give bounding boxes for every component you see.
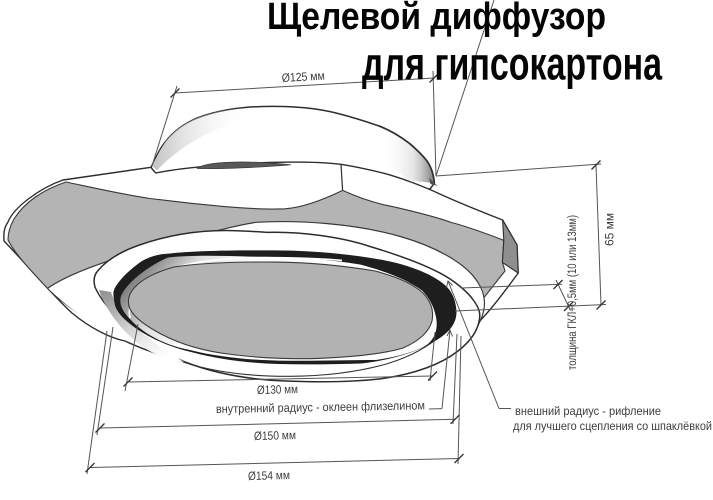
svg-text:внутренний радиус - оклеен фли: внутренний радиус - оклеен флизелином — [216, 398, 425, 416]
svg-text:толщина ГКЛ+0,5мм (10 или 13мм: толщина ГКЛ+0,5мм (10 или 13мм) — [567, 215, 579, 370]
svg-text:Ø154 мм: Ø154 мм — [248, 468, 290, 483]
svg-text:Ø130 мм: Ø130 мм — [257, 382, 298, 397]
svg-text:для гипсокартона: для гипсокартона — [362, 38, 662, 90]
svg-text:Ø150 мм: Ø150 мм — [254, 428, 296, 443]
svg-text:65 мм: 65 мм — [603, 213, 617, 246]
svg-text:Ø125 мм: Ø125 мм — [281, 69, 325, 85]
svg-text:внешний радиус - рифление: внешний радиус - рифление — [515, 404, 661, 418]
svg-text:для лучшего сцепления со шпакл: для лучшего сцепления со шпаклёвкой — [513, 419, 712, 433]
svg-text:Щелевой диффузор: Щелевой диффузор — [267, 0, 606, 38]
